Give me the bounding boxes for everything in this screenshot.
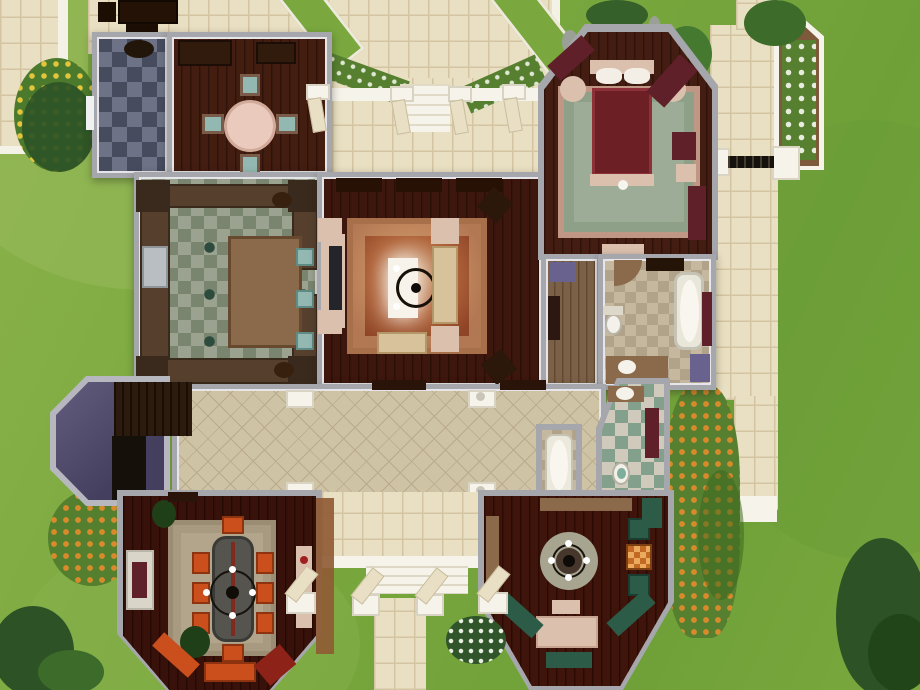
garden-pedestal <box>772 146 800 180</box>
living-chandelier-bulb-1 <box>393 265 400 272</box>
study-bench-baywindow-bottom[interactable] <box>546 652 592 668</box>
tv-screen[interactable] <box>329 246 342 316</box>
kitchen-stool-1[interactable] <box>296 248 314 266</box>
kitchen-sink[interactable] <box>142 246 168 288</box>
bedroom-armchair[interactable] <box>672 132 696 160</box>
living-chandelier-center <box>411 283 421 293</box>
study-bench-right[interactable] <box>642 498 662 528</box>
living-window-shutter-1 <box>336 178 382 192</box>
sofa-table-b[interactable] <box>431 326 459 352</box>
front-porch-floor <box>322 492 478 566</box>
living-chandelier-bulb-3 <box>393 303 400 310</box>
mudroom-window <box>86 96 94 130</box>
study-chand-bulb-3 <box>565 540 572 547</box>
mudroom-ceiling-lamp[interactable] <box>124 40 154 58</box>
piano-bench[interactable] <box>552 600 580 614</box>
toilet-master[interactable] <box>605 314 622 335</box>
breakfast-table[interactable] <box>224 100 276 152</box>
study-chand-center <box>563 555 575 567</box>
dining-chand-bulb-1 <box>203 589 210 596</box>
nightstand-left[interactable] <box>560 76 586 102</box>
dining-chair-head-top[interactable] <box>222 516 244 534</box>
dining-sideboard-item-a <box>300 556 308 564</box>
bath-purple-cabinet[interactable] <box>690 354 710 382</box>
kitchen-pot-top[interactable] <box>272 192 292 208</box>
breakfast-cabinet-1[interactable] <box>178 40 232 66</box>
bed-pillow-b <box>624 68 650 84</box>
closet-shelf[interactable] <box>548 296 560 340</box>
kitchen-stool-3[interactable] <box>296 332 314 350</box>
bush-bottomleft <box>38 650 104 690</box>
bedroom-lamp-dot <box>618 180 628 190</box>
kitchen-pot-bottom[interactable] <box>274 362 294 378</box>
dining-chand-bulb-4 <box>229 612 236 619</box>
study-chand-bulb-4 <box>565 574 572 581</box>
bedroom-stool[interactable] <box>676 164 696 182</box>
bath-guest-basin <box>616 387 634 400</box>
breakfast-chair-west[interactable] <box>202 114 224 134</box>
study-chand-bulb-2 <box>583 557 590 564</box>
bath-cabinet-top[interactable] <box>646 258 684 271</box>
dining-door-top[interactable] <box>168 492 198 502</box>
bush-white-flowers <box>446 616 506 664</box>
study-chand-bulb-1 <box>548 557 555 564</box>
path-right <box>710 25 778 400</box>
kitchen-fridge[interactable] <box>136 180 170 212</box>
toilet-master-tank <box>603 306 623 315</box>
chess-table[interactable] <box>626 544 652 570</box>
living-window-shutter-2 <box>396 178 442 192</box>
dining-chair-r1[interactable] <box>256 552 274 574</box>
dining-chair-r3[interactable] <box>256 612 274 634</box>
patio-chair-a[interactable] <box>98 2 116 22</box>
hall-pedestal-1[interactable] <box>286 390 314 408</box>
sims-lot-overhead-view[interactable] <box>0 0 920 690</box>
dining-chair-l1[interactable] <box>192 552 210 574</box>
bed-pillow-a <box>596 68 622 84</box>
dining-chand-center <box>226 586 239 599</box>
dining-bench-baywindow-bottom[interactable] <box>204 662 256 682</box>
hall-console-3[interactable] <box>500 380 546 390</box>
bath-vanity-basin <box>618 360 636 374</box>
sofa-table-a[interactable] <box>431 218 459 244</box>
hall-console-1[interactable] <box>372 380 426 390</box>
tree-bottomright-2 <box>868 614 920 690</box>
dining-chair-r2[interactable] <box>256 582 274 604</box>
stairs-upper[interactable] <box>114 382 192 436</box>
dining-plant-top[interactable] <box>152 500 176 528</box>
bathtub-guest-basin <box>550 440 568 490</box>
piano[interactable] <box>536 616 598 648</box>
dining-chair-head-bottom[interactable] <box>222 644 244 662</box>
dining-fireplace-firebox <box>132 562 147 598</box>
bed-blanket[interactable] <box>592 88 652 176</box>
sofa[interactable] <box>432 246 458 324</box>
breakfast-chair-east[interactable] <box>276 114 298 134</box>
hall-lamp-a <box>476 392 485 401</box>
bathtub-master-basin <box>680 280 699 342</box>
toilet-guest-lid <box>617 468 626 479</box>
patio-table[interactable] <box>118 0 178 24</box>
breakfast-chair-north[interactable] <box>240 74 260 96</box>
dining-chand-bulb-2 <box>249 589 256 596</box>
kitchen-stove[interactable] <box>288 180 320 212</box>
dining-chand-bulb-3 <box>229 566 236 573</box>
study-sideboard[interactable] <box>540 498 632 511</box>
kitchen-island[interactable] <box>228 236 302 348</box>
bath-cabinet-right[interactable] <box>702 292 712 346</box>
loveseat[interactable] <box>377 332 427 354</box>
closet-dresser[interactable] <box>550 262 576 282</box>
flower-bed-right-shade <box>698 470 744 600</box>
palm-top-right <box>744 0 806 46</box>
path-right-lower <box>734 396 778 510</box>
railing-bar-1 <box>728 156 774 168</box>
breakfast-cabinet-2[interactable] <box>256 42 296 64</box>
bedroom-desk[interactable] <box>688 186 706 240</box>
dining-wing-siding <box>316 498 334 654</box>
tree-topleft <box>22 82 96 172</box>
kitchen-stool-2[interactable] <box>296 290 314 308</box>
living-sidetable-b[interactable] <box>318 310 342 334</box>
living-sidetable-a[interactable] <box>318 218 342 242</box>
garden-bed-right-plants <box>782 40 816 160</box>
bath-guest-cabinet[interactable] <box>645 408 659 458</box>
